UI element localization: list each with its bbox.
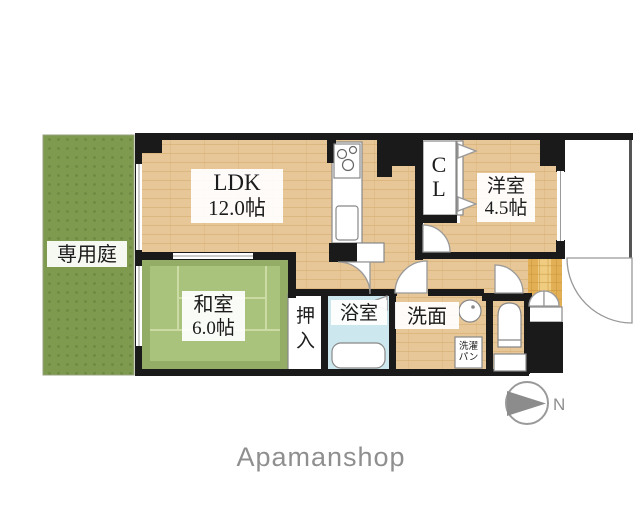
bathroom-label: 浴室: [340, 302, 378, 324]
window: [136, 266, 142, 346]
window: [173, 253, 253, 259]
window: [557, 171, 564, 241]
compass-north-label: N: [553, 395, 565, 414]
entrance-step: [528, 307, 562, 322]
laundry-pan-box: 洗濯 パン: [455, 337, 482, 368]
garden-label: 専用庭: [57, 243, 117, 266]
brand-logo-text: Apamanshop: [236, 442, 405, 472]
oshiire-label: 押: [296, 305, 315, 327]
kitchen-sink-icon: [336, 206, 358, 240]
oshiire-label: 入: [296, 331, 315, 352]
washbasin-icon: [459, 300, 481, 322]
floor-plan-svg: 洗濯 パン 専用庭 LDK 12.0帖 洋室 4.5帖 和室 6.0帖 C L …: [0, 0, 640, 512]
refrigerator-space: [356, 243, 384, 262]
bathtub-icon: [332, 343, 385, 368]
toilet-icon: [494, 303, 526, 371]
japanese-room-size-label: 6.0帖: [192, 317, 235, 339]
floor-plan-image: 洗濯 パン 専用庭 LDK 12.0帖 洋室 4.5帖 和室 6.0帖 C L …: [0, 0, 640, 512]
porch-edge-line: [629, 140, 632, 258]
ldk-label: LDK: [213, 170, 261, 195]
japanese-room-label: 和室: [194, 293, 234, 316]
stove-icon: [334, 144, 360, 178]
window: [136, 164, 142, 250]
compass-icon: N: [506, 382, 565, 424]
ldk-size-label: 12.0帖: [208, 196, 266, 220]
laundry-pan-label: パン: [459, 352, 478, 363]
entrance-door-arc: [567, 258, 632, 323]
closet-cl-label: C: [432, 152, 447, 177]
western-room-size-label: 4.5帖: [485, 197, 528, 219]
western-room-label: 洋室: [487, 175, 525, 197]
laundry-pan-label: 洗濯: [459, 340, 479, 352]
closet-cl-label: L: [432, 176, 445, 201]
washroom-label: 洗面: [407, 305, 447, 328]
